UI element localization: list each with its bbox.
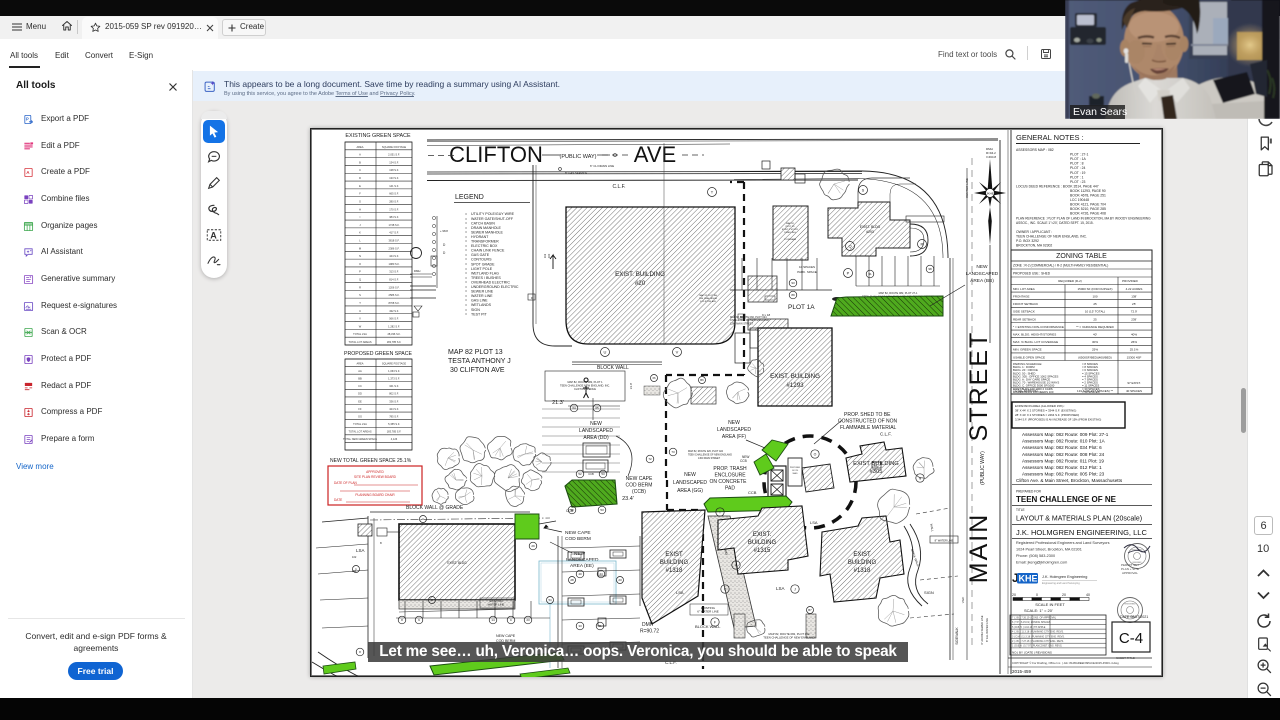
svg-text:ASSESSORS MAP : 082: ASSESSORS MAP : 082	[1016, 148, 1054, 152]
svg-text:53: 53	[601, 472, 605, 476]
svg-text:B6: B6	[700, 378, 704, 382]
svg-text:8" GAS SERVICE: 8" GAS SERVICE	[565, 171, 587, 175]
svg-text:CHAIN LINK FENCE: CHAIN LINK FENCE	[471, 249, 505, 253]
svg-text:6" AROMA SEWER LINE: 6" AROMA SEWER LINE	[980, 615, 984, 644]
svg-text:CATCH BASIN: CATCH BASIN	[471, 221, 495, 225]
svg-text:Clifton Ave. & Main Street, Br: Clifton Ave. & Main Street, Brockton, Ma…	[1016, 478, 1123, 483]
svg-text:WATER LINE: WATER LINE	[488, 603, 505, 607]
svg-text:COD BERM: COD BERM	[626, 483, 653, 489]
svg-text:CENTER LINE: CENTER LINE	[965, 178, 969, 198]
svg-text:=: =	[465, 308, 467, 312]
svg-text:TOTAL NEW GREEN SPACE: TOTAL NEW GREEN SPACE	[343, 437, 377, 441]
svg-text:EE: EE	[358, 399, 362, 403]
svg-text:+ 98.8: + 98.8	[440, 229, 448, 233]
svg-text:(PUBLIC WAY): (PUBLIC WAY)	[980, 451, 986, 485]
svg-text:MAP 82, ROUTE 082, PLOT 27-1: MAP 82, ROUTE 082, PLOT 27-1	[879, 291, 918, 295]
svg-text:LANDSCAPED: LANDSCAPED	[579, 428, 613, 434]
svg-text:VGC: VGC	[961, 596, 965, 603]
svg-text:424 S.F.: 424 S.F.	[389, 407, 399, 411]
svg-text:6" CLI DRAIN LINE: 6" CLI DRAIN LINE	[590, 164, 614, 168]
svg-text:F: F	[531, 296, 533, 300]
svg-text:802 S.F.: 802 S.F.	[389, 392, 399, 396]
svg-text:138': 138'	[1131, 295, 1137, 299]
svg-text:432 S.F.: 432 S.F.	[389, 309, 399, 313]
svg-text:UTILITY POLE/GUY WIRE: UTILITY POLE/GUY WIRE	[471, 212, 515, 216]
svg-text:TESTA ANTHONY J: TESTA ANTHONY J	[448, 358, 511, 365]
svg-text:31: 31	[598, 624, 602, 628]
svg-text:93: 93	[791, 281, 795, 285]
svg-text:54: 54	[548, 598, 552, 602]
svg-text:PLOT : 23: PLOT : 23	[1070, 180, 1086, 184]
svg-text:LANDSCAPED: LANDSCAPED	[966, 271, 999, 277]
svg-text:TRANSFORMER: TRANSFORMER	[471, 240, 499, 244]
svg-text:COPYRIGHT © For Drafting, Offi: COPYRIGHT © For Drafting, Office Inc. | …	[1012, 661, 1119, 665]
svg-text:183,785 S.F.: 183,785 S.F.	[387, 340, 402, 344]
svg-text:100: 100	[1092, 295, 1097, 299]
svg-text:Assessors Map: 082 Route: 01: Assessors Map: 082 Route: 012 Plot: 1	[1022, 465, 1102, 470]
svg-text:AREA (BB): AREA (BB)	[970, 278, 994, 284]
svg-text:=: =	[465, 294, 467, 298]
svg-text:MIN. LOT AREA: MIN. LOT AREA	[1013, 287, 1035, 291]
svg-text:73: 73	[671, 450, 675, 454]
svg-text:6 | T.P. | 6.15.19 | ZONING SP: 6 | T.P. | 6.15.19 | ZONING SPACES	[1012, 621, 1051, 624]
svg-text:AREA: AREA	[356, 145, 363, 149]
svg-text:OVERHEAD ELECTRIC: OVERHEAD ELECTRIC	[471, 280, 510, 284]
svg-text:65: 65	[595, 406, 599, 410]
svg-text:Assessors Map: 082 Route: 00: Assessors Map: 082 Route: 009 Plot: 27-1	[1022, 432, 1109, 437]
svg-text:FRONT SETBACK: FRONT SETBACK	[1013, 302, 1038, 306]
svg-text:1024 Pearl Street, Brockton, M: 1024 Pearl Street, Brockton, MA 02301	[1016, 548, 1082, 552]
svg-text:=: =	[465, 249, 467, 253]
svg-text:3,344 S.F. (PROPOSED) IS AN IN: 3,344 S.F. (PROPOSED) IS AN INCREASE OF …	[1015, 418, 1101, 422]
svg-text:=: =	[465, 267, 467, 271]
svg-text:N: N	[359, 254, 361, 258]
svg-text:NEW CAPE: NEW CAPE	[626, 476, 653, 482]
svg-text:72.9': 72.9'	[1131, 310, 1138, 314]
svg-text:LSA: LSA	[810, 520, 818, 525]
svg-text:#305: #305	[870, 469, 883, 475]
svg-text:HYDRANT: HYDRANT	[471, 235, 489, 239]
svg-text:64: 64	[572, 406, 576, 410]
svg-text:566 S.F.: 566 S.F.	[389, 317, 399, 321]
svg-text:Evan Sears: Evan Sears	[1073, 106, 1127, 118]
svg-text:=: =	[465, 212, 467, 216]
svg-text:SIGN: SIGN	[471, 308, 480, 312]
svg-text:133 S.F.: 133 S.F.	[389, 176, 399, 180]
svg-text:P: P	[26, 116, 29, 121]
svg-text:131.6 (66 1ST SPACES) **: 131.6 (66 1ST SPACES) **	[1077, 389, 1114, 393]
svg-text:TREES / BUSHES: TREES / BUSHES	[471, 276, 501, 280]
svg-text:C.L.F.: C.L.F.	[880, 432, 892, 437]
svg-text:NEW: NEW	[590, 421, 602, 427]
svg-text:=: =	[465, 290, 467, 294]
svg-text:B: B	[359, 160, 361, 164]
svg-text:814 S.F.: 814 S.F.	[389, 278, 399, 282]
svg-text:J.K. HOLMGREN ENGINEERING, LLC: J.K. HOLMGREN ENGINEERING, LLC	[1016, 528, 1147, 537]
svg-text:I: I	[720, 510, 721, 514]
svg-text:G: G	[359, 199, 361, 203]
svg-text:#1318: #1318	[854, 568, 871, 574]
svg-text:EXPANSION AREA (ALLOWED 15%) :: EXPANSION AREA (ALLOWED 15%) :	[1015, 404, 1065, 408]
svg-text:LSA: LSA	[676, 590, 684, 595]
svg-text:GAS LINE: GAS LINE	[471, 299, 488, 303]
svg-text:20: 20	[1062, 593, 1066, 597]
svg-text:23.4': 23.4'	[622, 496, 634, 502]
svg-text:GG: GG	[358, 414, 362, 418]
svg-text:JKHE: JKHE	[986, 192, 994, 196]
svg-text:LANDSCAPED: LANDSCAPED	[717, 427, 751, 433]
svg-text:PLOT : 24: PLOT : 24	[1070, 166, 1086, 170]
svg-text:DMH: DMH	[642, 622, 654, 628]
svg-text:785 S.F.: 785 S.F.	[389, 414, 399, 418]
svg-text:CCB: CCB	[740, 459, 747, 463]
svg-text:O: O	[814, 452, 817, 456]
svg-text:CONTOURS: CONTOURS	[471, 258, 492, 262]
svg-text:DATE 08/07/2021: DATE 08/07/2021	[1120, 615, 1148, 619]
svg-text:BOOK 11293, PAGE 90: BOOK 11293, PAGE 90	[1070, 189, 1106, 193]
svg-text:=: =	[465, 271, 467, 275]
svg-text:=: =	[465, 285, 467, 289]
svg-text:J.K. Holmgren Engineering: J.K. Holmgren Engineering	[1042, 575, 1087, 579]
svg-text:FLAMMABLE MATERIAL: FLAMMABLE MATERIAL	[840, 425, 897, 431]
svg-text:MAP 82 PLOT 8A: MAP 82 PLOT 8A	[699, 294, 717, 297]
svg-text:336 S.F.: 336 S.F.	[389, 399, 399, 403]
svg-text:REAR SETBACK: REAR SETBACK	[1013, 317, 1036, 321]
svg-text:NEW: NEW	[728, 420, 740, 426]
svg-text:384 S.F.: 384 S.F.	[389, 215, 399, 219]
svg-text:NEW CAPE: NEW CAPE	[565, 530, 591, 536]
svg-text:TOTAL LOT AREAS: TOTAL LOT AREAS	[348, 430, 371, 434]
svg-text:8 CLIFTON AVE: 8 CLIFTON AVE	[700, 300, 716, 303]
svg-text:C-4: C-4	[1119, 630, 1143, 647]
svg-text:Registered Professional Engine: Registered Professional Engineers and La…	[1016, 541, 1110, 545]
svg-text:52: 52	[578, 472, 582, 476]
svg-text:OWNER / APPLICANT :: OWNER / APPLICANT :	[1016, 230, 1052, 234]
svg-text:PROPOSED GREEN SPACE: PROPOSED GREEN SPACE	[344, 351, 412, 357]
svg-text:DD: DD	[358, 392, 362, 396]
svg-text:Q: Q	[359, 278, 361, 282]
svg-text:B7: B7	[808, 608, 812, 612]
svg-text:1748 S.F.: 1748 S.F.	[389, 223, 400, 227]
svg-text:239': 239'	[1131, 317, 1137, 321]
svg-text:=: =	[465, 217, 467, 221]
svg-text:PLOT : 8: PLOT : 8	[1070, 162, 1084, 166]
svg-text:33: 33	[578, 624, 582, 628]
svg-text:ZONING TABLE: ZONING TABLE	[1056, 253, 1107, 260]
svg-text:(CCB): (CCB)	[632, 489, 646, 495]
svg-text:=: =	[465, 258, 467, 262]
svg-text:R: R	[921, 241, 924, 246]
svg-text:PLOT : 1: PLOT : 1	[1070, 175, 1084, 179]
svg-text:EXIST.: EXIST.	[753, 532, 772, 538]
svg-text:REQUIRED (R-2): REQUIRED (R-2)	[1058, 279, 1082, 283]
svg-text:AREA: AREA	[356, 361, 363, 365]
svg-text:2586 S.F.: 2586 S.F.	[389, 293, 400, 297]
svg-text:28,336 S.F.: 28,336 S.F.	[387, 332, 400, 336]
svg-text:1980 S.F.: 1980 S.F.	[389, 262, 400, 266]
svg-text:MAX. BLDG. HEIGHT/STORIES: MAX. BLDG. HEIGHT/STORIES	[1013, 333, 1056, 337]
svg-text:Assessors Map: 082 Route: 00: Assessors Map: 082 Route: 008 Plot: 24	[1022, 452, 1105, 457]
svg-text:1300 MAIN STREET: 1300 MAIN STREET	[698, 457, 721, 460]
svg-text:183,785 S.F.: 183,785 S.F.	[387, 430, 402, 434]
svg-text:MAIN: MAIN	[965, 513, 993, 584]
svg-text:23: 23	[618, 578, 622, 582]
svg-text:ON CONCRETE: ON CONCRETE	[710, 479, 748, 485]
svg-text:FF: FF	[358, 407, 362, 411]
svg-text:MAP 82: MAP 82	[786, 222, 795, 225]
svg-text:PROPOSED: PROPOSED	[790, 467, 801, 469]
svg-text:CC: CC	[358, 384, 362, 388]
svg-text:THE CHALLENGE: THE CHALLENGE	[699, 297, 718, 300]
svg-text:=: =	[465, 221, 467, 225]
svg-text:25: 25	[1093, 302, 1097, 306]
svg-text:BUILDING: BUILDING	[748, 540, 777, 546]
svg-text:SIDEWALK: SIDEWALK	[955, 627, 959, 645]
svg-text:=: =	[465, 253, 467, 257]
svg-text:MAX. % BLDG. LOT COVERAGE: MAX. % BLDG. LOT COVERAGE	[1013, 340, 1058, 344]
svg-text:SITE PLAN REVIEW BOARD: SITE PLAN REVIEW BOARD	[354, 475, 397, 479]
svg-text:28' X 44' X 2 STORIES = 2464 S: 28' X 44' X 2 STORIES = 2464 S.F. (PROPO…	[1015, 413, 1079, 417]
svg-text:U: U	[359, 309, 361, 313]
svg-text:=: =	[465, 226, 467, 230]
svg-text:I=464.8: I=464.8	[986, 155, 996, 159]
svg-text:#1318: #1318	[666, 568, 683, 574]
svg-text:AREA (GG): AREA (GG)	[677, 488, 703, 494]
svg-text:* = EXISTING NON-CONFORMANCE: * = EXISTING NON-CONFORMANCE	[1013, 325, 1064, 329]
svg-text:ENCLOSURE: ENCLOSURE	[714, 473, 746, 479]
svg-text:M: M	[359, 246, 361, 250]
svg-text:SQUARE FOOTAGE: SQUARE FOOTAGE	[382, 361, 406, 365]
svg-text:170 S.F.: 170 S.F.	[389, 207, 399, 211]
svg-text:TEEN CHALLENGE OF NEW ENGLAND,: TEEN CHALLENGE OF NEW ENGLAND, INC.	[1016, 234, 1087, 238]
svg-text:313 S.F.: 313 S.F.	[389, 270, 399, 274]
svg-text:ZONE : R-2 (COMMERCIAL) / R: ZONE : R-2 (COMMERCIAL) / R-2 (MULTI-FAM…	[1013, 264, 1108, 268]
svg-text:TOTAL PARKING: TOTAL PARKING	[1013, 389, 1038, 393]
svg-text:=: =	[465, 240, 467, 244]
svg-text:28: 28	[570, 578, 574, 582]
svg-text:5 | D.B.H. | 4.10.19 | TP APPL: 5 | D.B.H. | 4.10.19 | TP APPLE	[1012, 626, 1046, 629]
svg-text:6" WATER LINE: 6" WATER LINE	[697, 610, 719, 614]
svg-text:25%: 25%	[1092, 348, 1098, 352]
svg-text:2386 S.F.: 2386 S.F.	[389, 246, 400, 250]
svg-text:A: A	[26, 170, 30, 175]
svg-text:2015-459: 2015-459	[1012, 669, 1032, 674]
svg-text:1206 S.F.: 1206 S.F.	[389, 285, 400, 289]
svg-text:SIGN: SIGN	[924, 590, 934, 595]
svg-text:LEGEND: LEGEND	[455, 194, 484, 201]
svg-text:SIDE SETBACK: SIDE SETBACK	[1013, 310, 1035, 314]
svg-text:ASSOC., INC. SCALE 1"=20', DAT: ASSOC., INC. SCALE 1"=20', DATED SEPT. 1…	[1016, 221, 1094, 225]
svg-text:A: A	[210, 230, 217, 240]
svg-text:SCALE: 1" = 20': SCALE: 1" = 20'	[1024, 608, 1053, 613]
svg-text:P: P	[847, 270, 850, 275]
svg-text:LIGHT POLE: LIGHT POLE	[471, 267, 493, 271]
svg-text:444 S.F.: 444 S.F.	[389, 254, 399, 258]
svg-text:PROP. SHED TO BE: PROP. SHED TO BE	[844, 412, 891, 418]
svg-text:66: 66	[652, 376, 656, 380]
svg-text:30 CLIFTON AVE: 30 CLIFTON AVE	[450, 367, 505, 374]
svg-text:GAS GATE: GAS GATE	[471, 253, 490, 257]
svg-text:TEEN CHALLENGE OF NEW ENGLAND: TEEN CHALLENGE OF NEW ENGLAND	[763, 636, 814, 640]
svg-text:23: 23	[526, 618, 530, 622]
svg-text:TOTAL LSA: TOTAL LSA	[353, 332, 367, 336]
svg-text:0: 0	[1036, 593, 1038, 597]
svg-text:LSA: LSA	[776, 586, 785, 591]
svg-text:341 S.F.: 341 S.F.	[389, 384, 399, 388]
svg-text:BLOCK WALL @ GRADE: BLOCK WALL @ GRADE	[406, 505, 464, 511]
svg-text:TEEN CHALLENGE OF NE: TEEN CHALLENGE OF NE	[1016, 495, 1117, 504]
svg-text:=: =	[465, 312, 467, 316]
svg-text:B6: B6	[874, 464, 878, 468]
svg-text:NEW CAPE: NEW CAPE	[496, 634, 516, 638]
svg-text:WATER LINE: WATER LINE	[471, 294, 493, 298]
svg-text:BUILDING: BUILDING	[660, 560, 689, 566]
svg-text:PLOT : 19: PLOT : 19	[1070, 171, 1086, 175]
svg-text:40 SPACES: 40 SPACES	[1126, 389, 1142, 393]
svg-text:PARK. SPACE: PARK. SPACE	[797, 270, 817, 274]
svg-text:89: 89	[791, 293, 795, 297]
svg-text:98: 98	[928, 267, 932, 271]
svg-text:UNDERGROUND ELECTRIC: UNDERGROUND ELECTRIC	[471, 285, 519, 289]
svg-text:O: O	[359, 262, 361, 266]
svg-text:TOTAL LOT AREAS: TOTAL LOT AREAS	[348, 340, 371, 344]
svg-text:STREET: STREET	[965, 331, 993, 442]
svg-text:72: 72	[648, 457, 652, 461]
svg-text:ELECTRIC BOX: ELECTRIC BOX	[471, 244, 498, 248]
svg-text:V: V	[676, 349, 679, 354]
svg-text:40: 40	[1086, 593, 1090, 597]
svg-text:53: 53	[600, 508, 604, 512]
svg-text:PLOT 19: PLOT 19	[786, 226, 795, 228]
svg-text:=: =	[465, 262, 467, 266]
svg-text:665 S.F.: 665 S.F.	[389, 192, 399, 196]
svg-text:C.L.F.: C.L.F.	[612, 184, 625, 190]
svg-text:15000 SF (FOR DUPLEX): 15000 SF (FOR DUPLEX)	[1077, 287, 1112, 291]
svg-text:E: E	[359, 184, 361, 188]
svg-text:AVE: AVE	[634, 142, 676, 167]
svg-text:100: 100	[547, 253, 551, 258]
svg-text:CLIFTON: CLIFTON	[449, 142, 543, 167]
svg-text:WATER GATE/SHUT-OFF: WATER GATE/SHUT-OFF	[471, 217, 514, 221]
svg-text:25.1%: 25.1%	[1130, 348, 1139, 352]
svg-text:P: P	[359, 270, 361, 274]
svg-text:BLOCK WALL: BLOCK WALL	[695, 624, 721, 629]
svg-text:=: =	[465, 276, 467, 280]
svg-text:31.0': 31.0'	[629, 382, 633, 389]
svg-text:25: 25	[1093, 317, 1097, 321]
svg-text:134 S.F.: 134 S.F.	[389, 160, 399, 164]
svg-text:=: =	[465, 299, 467, 303]
svg-text:15300 4SF: 15300 4SF	[1127, 355, 1142, 359]
svg-text:21.3': 21.3'	[552, 400, 564, 406]
svg-text:BROCKTON, MA 02302: BROCKTON, MA 02302	[1016, 244, 1052, 248]
svg-text:97 EXIST.: 97 EXIST.	[1127, 381, 1141, 385]
svg-text:PLAN REFERENCE : PLOT PLAN OF: PLAN REFERENCE : PLOT PLAN OF LAND IN BR…	[1016, 216, 1151, 220]
svg-text:14: 14	[491, 618, 495, 622]
svg-text:138 S.F.: 138 S.F.	[389, 168, 399, 172]
svg-text:PROP. TRASH: PROP. TRASH	[713, 466, 747, 472]
svg-text:Email: jkeng@jkholmgren.com: Email: jkeng@jkholmgren.com	[1016, 561, 1067, 565]
svg-text:NEW: NEW	[684, 472, 696, 478]
svg-text:B: B	[431, 598, 433, 602]
svg-text:AREA (FF): AREA (FF)	[722, 434, 747, 440]
svg-text:PAD: PAD	[725, 486, 735, 492]
svg-text:S: S	[862, 187, 865, 192]
svg-text:COD BERM: COD BERM	[565, 536, 591, 542]
svg-text:104: 104	[352, 569, 357, 573]
svg-text:DWELLING: DWELLING	[784, 232, 796, 234]
svg-text:EXIST. BLDG: EXIST. BLDG	[860, 225, 881, 229]
svg-text:25': 25'	[1132, 302, 1136, 306]
svg-text:SQUARE FOOTAGE: SQUARE FOOTAGE	[382, 145, 406, 149]
svg-text:4.22 ACRES: 4.22 ACRES	[1126, 287, 1143, 291]
svg-text:CCB: CCB	[588, 472, 594, 476]
svg-text:APPROVAL: APPROVAL	[1122, 571, 1138, 575]
svg-text:TOTAL LSA: TOTAL LSA	[353, 422, 367, 426]
svg-text:Assessors Map: 082 Route: 00: Assessors Map: 082 Route: 005 Plot: 23	[1022, 472, 1105, 477]
svg-text:DATE: DATE	[334, 498, 342, 502]
svg-text:K: K	[359, 231, 361, 235]
svg-text:44: 44	[599, 572, 603, 576]
svg-text:280 S.F.: 280 S.F.	[389, 199, 399, 203]
svg-text:8" ELL WATER LINE: 8" ELL WATER LINE	[985, 618, 989, 642]
svg-text:=: =	[465, 230, 467, 234]
svg-text:PLOT : 1A: PLOT : 1A	[1070, 157, 1087, 161]
svg-text:40%: 40%	[1131, 333, 1137, 337]
svg-text:PROPOSED USE : SHED: PROPOSED USE : SHED	[1013, 272, 1051, 276]
svg-text:1,282 S.F.: 1,282 S.F.	[388, 324, 400, 328]
svg-text:APPROVED: APPROVED	[366, 470, 384, 474]
svg-text:LSA: LSA	[356, 548, 365, 553]
svg-text:PLOT : 27-1: PLOT : 27-1	[1070, 153, 1089, 157]
svg-text:LANDSCAPED: LANDSCAPED	[673, 480, 707, 486]
svg-text:(PUBLIC WAY): (PUBLIC WAY)	[560, 154, 597, 160]
svg-text:1,373 S.F.: 1,373 S.F.	[388, 377, 400, 381]
svg-text:EXIST 2 STORY: EXIST 2 STORY	[782, 229, 799, 231]
svg-text:10 (15' TOTAL): 10 (15' TOTAL)	[1085, 310, 1105, 314]
svg-text:J: J	[794, 587, 796, 591]
svg-text:P.O. BOX 3292: P.O. BOX 3292	[1016, 239, 1039, 243]
svg-text:V: V	[359, 317, 361, 321]
svg-text:EXIST. BUILDING: EXIST. BUILDING	[615, 271, 665, 278]
svg-text:DMH: DMH	[414, 269, 420, 273]
svg-text:TO REMAIN: TO REMAIN	[784, 238, 797, 241]
svg-text:10 X 20: 10 X 20	[792, 470, 798, 472]
svg-text:=: =	[465, 244, 467, 248]
svg-text:MAP 82 PLOT 13: MAP 82 PLOT 13	[448, 349, 503, 356]
svg-text:CCB: CCB	[748, 490, 757, 495]
svg-text:BB: BB	[358, 377, 362, 381]
svg-text:102: 102	[543, 253, 547, 258]
svg-text:CONSTRUCTED OF NON: CONSTRUCTED OF NON	[838, 419, 898, 425]
svg-text:SEWER LINE: SEWER LINE	[471, 290, 494, 294]
svg-text:PROVIDED: PROVIDED	[1122, 279, 1139, 283]
svg-text:A: A	[359, 153, 361, 157]
svg-text:SEWER MANHOLE: SEWER MANHOLE	[471, 230, 504, 234]
svg-text:AA: AA	[358, 369, 362, 373]
svg-text:PLANNING BOARD CHAIR: PLANNING BOARD CHAIR	[355, 493, 395, 497]
svg-text:29: 29	[531, 544, 535, 548]
svg-text:=: =	[465, 280, 467, 284]
svg-text:NEW TOTAL GREEN SPACE 25.1%: NEW TOTAL GREEN SPACE 25.1%	[330, 458, 412, 464]
svg-text:8768 S.F.: 8768 S.F.	[389, 301, 400, 305]
svg-text:BOOK 4121, PAGE 704: BOOK 4121, PAGE 704	[1070, 203, 1106, 207]
svg-text:LAYOUT & MATERIALS PLAN (20sca: LAYOUT & MATERIALS PLAN (20scale)	[1016, 516, 1142, 523]
svg-text:A: A	[422, 517, 424, 521]
svg-text:C: C	[359, 168, 361, 172]
svg-text:WETLAND FLAG: WETLAND FLAG	[471, 271, 499, 275]
svg-text:LCC 190448: LCC 190448	[1070, 198, 1089, 202]
